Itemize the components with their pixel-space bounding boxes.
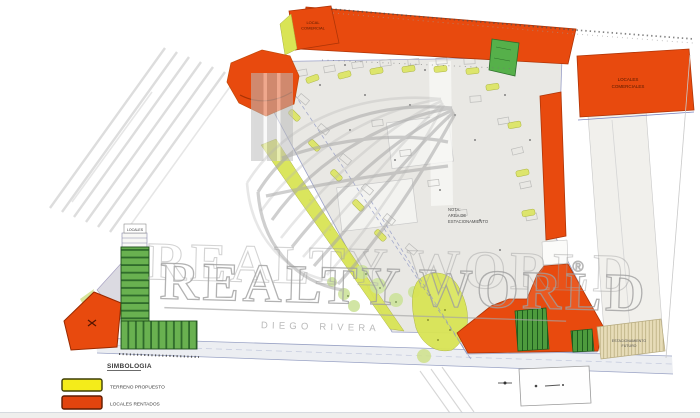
site-plan-drawing: LOCAL COMERCIAL LOCALES COMERCIALES NOTA… xyxy=(0,0,700,418)
center-note-line3: ESTACIONAMIENTO xyxy=(448,219,489,224)
red-pentagon-parcel xyxy=(64,292,121,350)
roadside-green xyxy=(417,349,431,363)
tan-strip-label2: FUTURO xyxy=(622,344,637,348)
legend-label-rented: LOCALES RENTADOS xyxy=(110,402,160,408)
green-block-b-stripes xyxy=(571,329,594,352)
building-label: LOCALES xyxy=(127,228,144,232)
center-note-line2: AREA DE xyxy=(448,213,466,218)
parcel-top-left-label2: COMERCIAL xyxy=(301,26,326,31)
parcel-top-left-label: LOCAL xyxy=(306,20,320,25)
site-plan-photo: LOCAL COMERCIAL LOCALES COMERCIALES NOTA… xyxy=(0,0,700,418)
highway-lines xyxy=(50,48,237,237)
tan-strip-label: ESTACIONAMIENTO xyxy=(612,339,647,343)
building-bar-vertical xyxy=(121,247,149,323)
center-note-line1: NOTA: xyxy=(448,207,461,212)
building-bar-horizontal xyxy=(121,321,197,349)
legend-title: SIMBOLOGIA xyxy=(107,363,152,370)
parcel-top-right-label: LOCALES xyxy=(618,77,639,82)
detail-box xyxy=(519,366,591,406)
building-units-top xyxy=(122,233,147,247)
legend-swatch-rented xyxy=(62,396,102,409)
parcel-top-right-label2: COMERCIALES xyxy=(612,84,645,89)
registered-mark: ® xyxy=(572,258,584,275)
legend-label-proposed: TERRENO PROPUESTO xyxy=(110,385,165,391)
watermark-subtitle: DIEGO RIVERA xyxy=(261,320,380,334)
bottom-hatch-lines xyxy=(420,367,474,416)
legend: SIMBOLOGIA TERRENO PROPUESTO LOCALES REN… xyxy=(62,363,165,409)
top-right-parcel xyxy=(577,49,694,117)
top-band-parcel xyxy=(299,7,576,64)
legend-swatch-proposed xyxy=(62,379,102,391)
photo-edge xyxy=(0,413,700,418)
green-diamond-parcel xyxy=(489,39,519,76)
